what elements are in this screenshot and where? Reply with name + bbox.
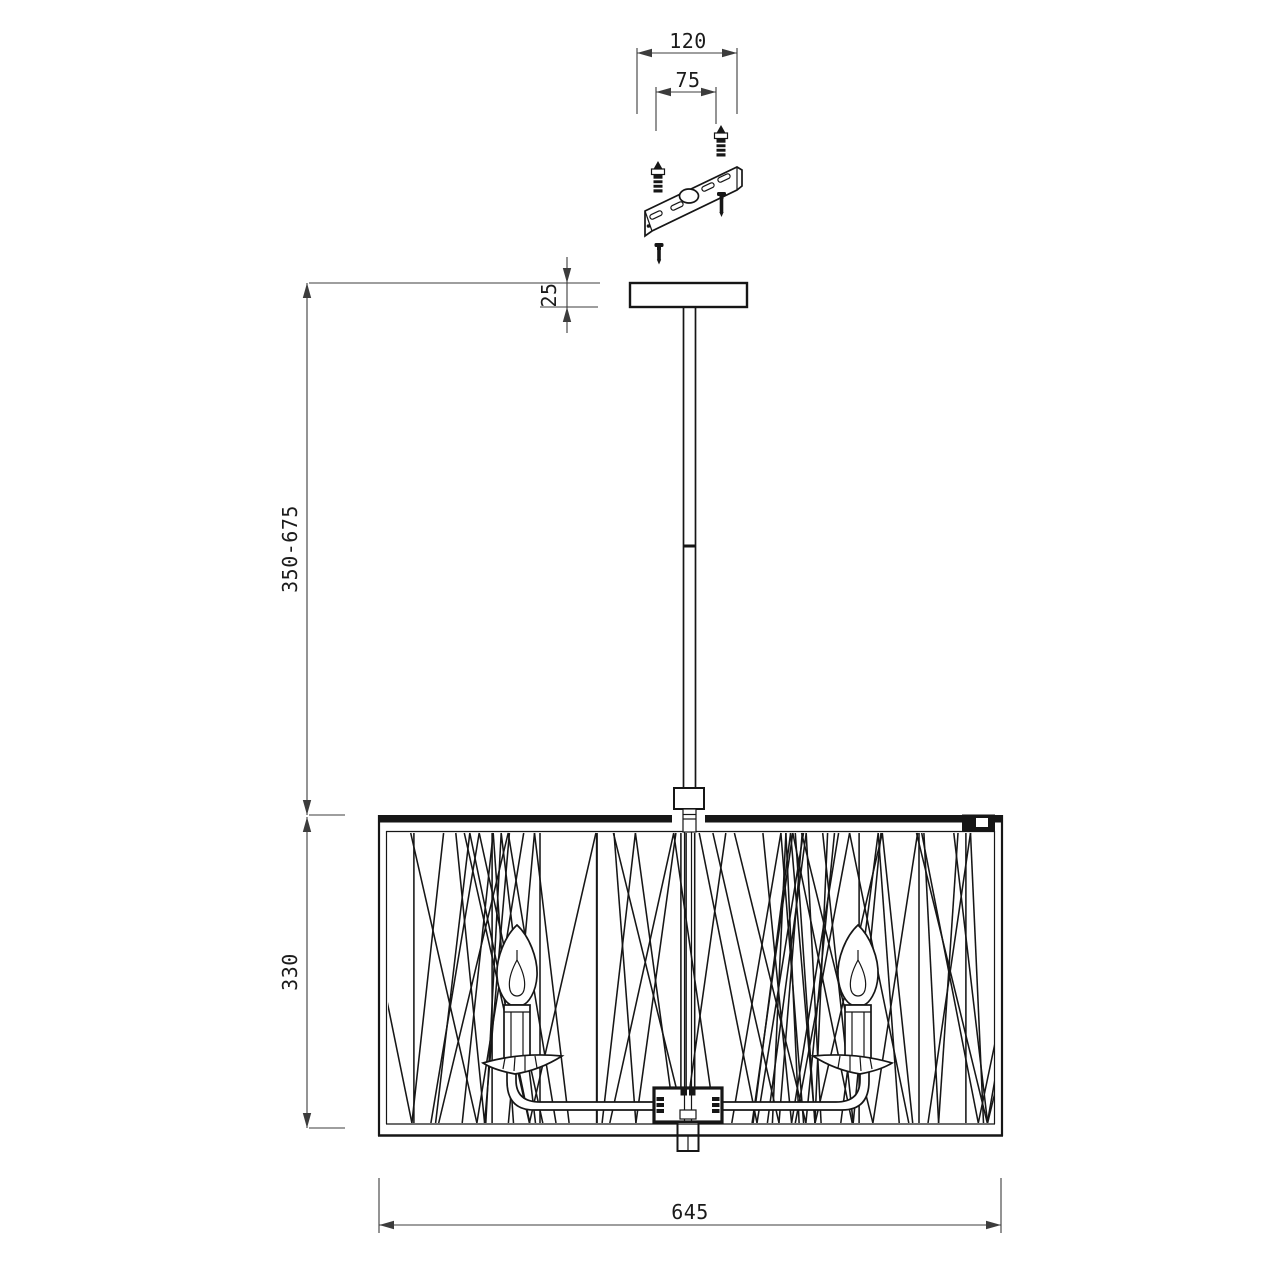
candle-right — [813, 925, 892, 1074]
dim-shade-width-label: 645 — [671, 1200, 709, 1224]
dim-shade-width: 645 — [379, 1178, 1001, 1233]
dim-canopy-height: 25 — [309, 257, 600, 333]
dim-canopy-height-label: 25 — [537, 282, 561, 307]
dim-shade-height: 330 — [278, 817, 345, 1128]
dim-rod-range-label: 350-675 — [278, 505, 302, 593]
hanging-rod — [683, 307, 696, 788]
bracket-end-hole — [647, 224, 651, 228]
anchor-plug-right — [715, 125, 728, 157]
technical-drawing-canvas: 120 75 25 350-675 330 645 — [0, 0, 1280, 1280]
dim-anchor-spacing: 75 — [656, 68, 716, 131]
dim-shade-height-label: 330 — [278, 953, 302, 991]
dim-bracket-width-label: 120 — [669, 29, 707, 53]
dim-anchor-spacing-label: 75 — [675, 68, 700, 92]
dim-rod-range: 350-675 — [278, 283, 345, 815]
drawing-page: 120 75 25 350-675 330 645 — [0, 0, 1280, 1280]
screw-bottom — [655, 243, 664, 265]
rod-coupler — [674, 788, 704, 832]
wire-pattern — [353, 833, 1058, 1123]
ceiling-canopy — [630, 283, 747, 307]
mounting-assembly — [645, 125, 742, 265]
screw-right — [717, 192, 726, 217]
anchor-plug-left — [652, 161, 665, 193]
shade-top-band — [378, 815, 672, 823]
drum-shade — [353, 815, 1058, 1152]
bracket-center-hole — [680, 189, 699, 203]
